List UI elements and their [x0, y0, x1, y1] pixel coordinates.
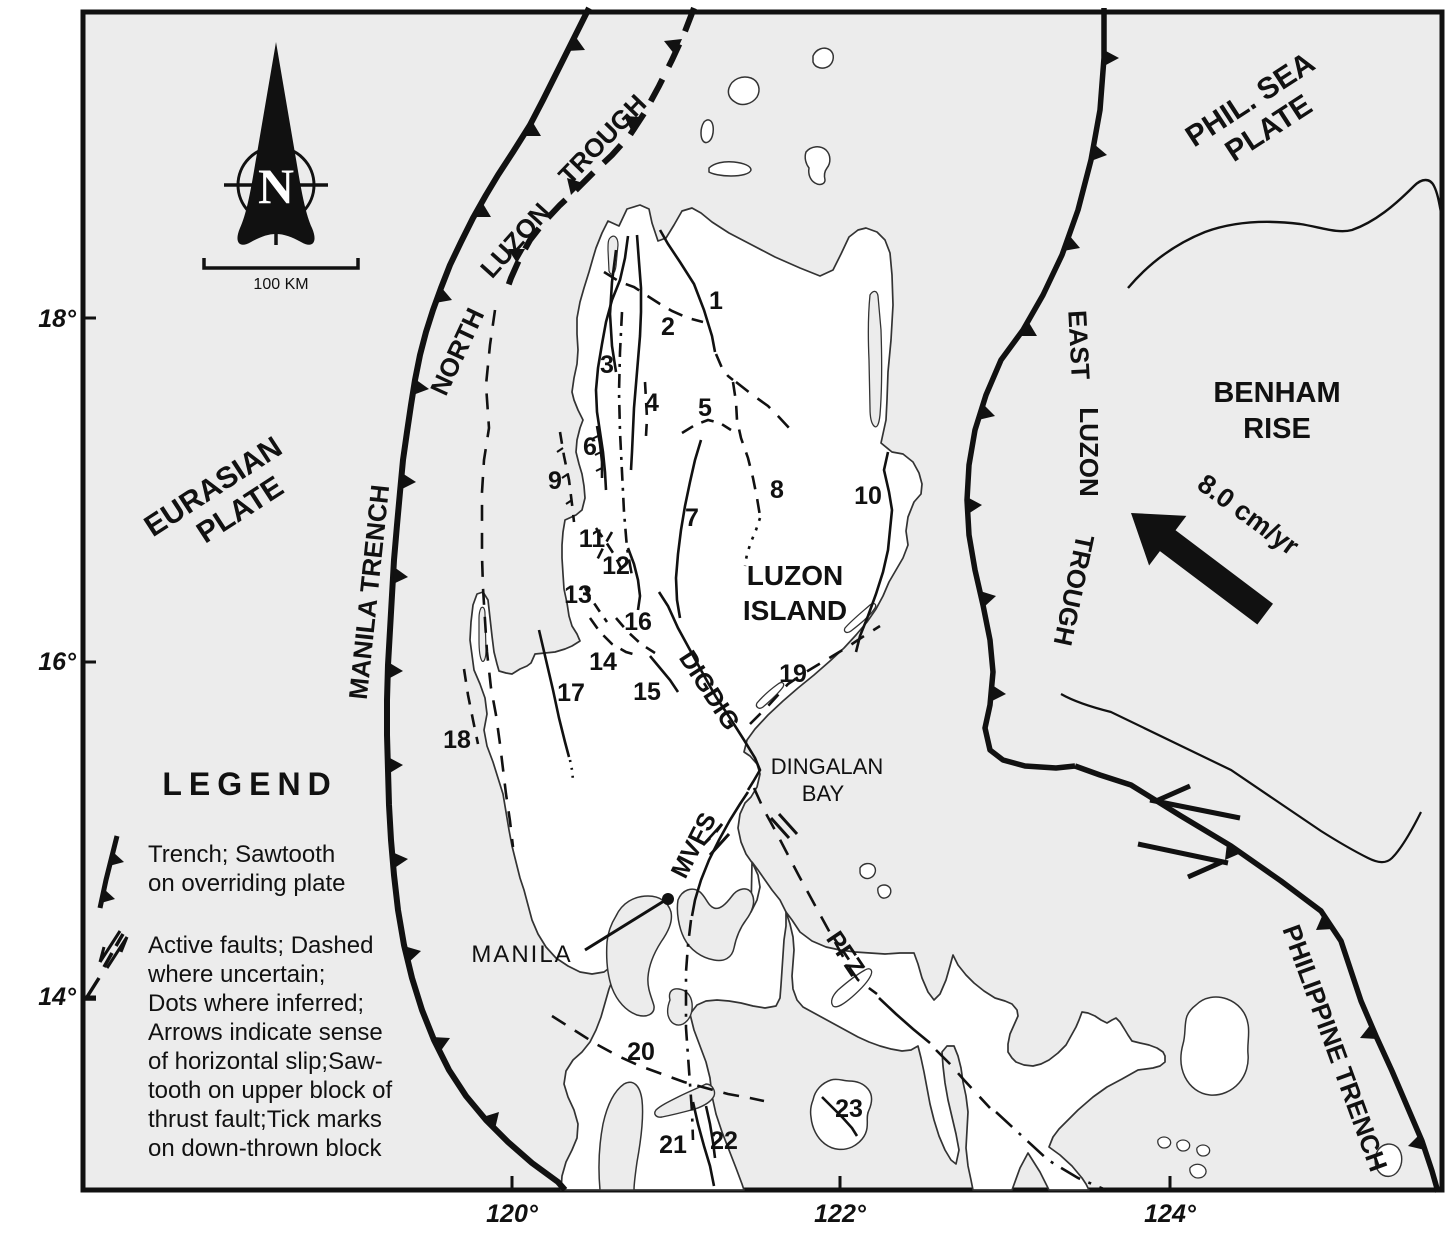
svg-text:4: 4: [645, 389, 659, 417]
svg-text:RISE: RISE: [1243, 413, 1311, 445]
svg-text:12: 12: [602, 552, 630, 580]
svg-text:2: 2: [661, 313, 675, 341]
svg-text:N: N: [258, 158, 294, 214]
svg-text:20: 20: [627, 1038, 655, 1066]
svg-text:of horizontal slip;Saw-: of horizontal slip;Saw-: [148, 1048, 383, 1075]
svg-text:22: 22: [710, 1127, 738, 1155]
svg-text:5: 5: [698, 394, 712, 422]
svg-text:LEGEND: LEGEND: [162, 766, 337, 802]
svg-text:21: 21: [659, 1131, 687, 1159]
svg-text:11: 11: [579, 525, 606, 553]
svg-text:122°: 122°: [814, 1200, 867, 1228]
svg-text:17: 17: [557, 679, 585, 707]
svg-text:EAST: EAST: [1062, 310, 1096, 381]
svg-text:Arrows indicate sense: Arrows indicate sense: [148, 1019, 383, 1046]
svg-text:18°: 18°: [38, 305, 77, 333]
svg-text:where uncertain;: where uncertain;: [147, 961, 325, 988]
svg-text:16: 16: [624, 608, 652, 636]
svg-text:thrust fault;Tick marks: thrust fault;Tick marks: [148, 1106, 382, 1133]
svg-text:on overriding plate: on overriding plate: [148, 870, 345, 897]
svg-text:tooth on upper block of: tooth on upper block of: [148, 1077, 393, 1104]
svg-text:DINGALAN: DINGALAN: [771, 754, 883, 779]
svg-text:7: 7: [685, 504, 699, 532]
svg-text:LUZON: LUZON: [1074, 407, 1104, 497]
svg-text:124°: 124°: [1144, 1200, 1197, 1228]
svg-text:3: 3: [600, 351, 614, 379]
svg-text:Active faults; Dashed: Active faults; Dashed: [148, 932, 373, 959]
svg-text:9: 9: [548, 467, 562, 495]
svg-text:ISLAND: ISLAND: [743, 595, 847, 626]
svg-text:Trench; Sawtooth: Trench; Sawtooth: [148, 841, 335, 868]
svg-text:16°: 16°: [38, 648, 77, 676]
svg-text:6: 6: [583, 433, 597, 461]
svg-text:MANILA: MANILA: [471, 941, 572, 968]
svg-text:BAY: BAY: [802, 781, 845, 806]
svg-text:Dots where inferred;: Dots where inferred;: [148, 990, 364, 1017]
svg-text:BENHAM: BENHAM: [1213, 377, 1340, 409]
svg-text:19: 19: [779, 660, 807, 688]
svg-text:14: 14: [589, 648, 617, 676]
svg-text:13: 13: [564, 581, 592, 609]
svg-text:14°: 14°: [38, 983, 77, 1011]
svg-text:10: 10: [854, 482, 882, 510]
svg-text:on down-thrown block: on down-thrown block: [148, 1135, 382, 1162]
svg-text:1: 1: [709, 287, 723, 315]
svg-text:8: 8: [770, 476, 784, 504]
svg-text:120°: 120°: [486, 1200, 539, 1228]
svg-text:100 KM: 100 KM: [253, 276, 308, 293]
svg-text:18: 18: [443, 726, 471, 754]
svg-text:23: 23: [835, 1095, 863, 1123]
svg-text:LUZON: LUZON: [747, 560, 843, 591]
svg-text:15: 15: [633, 678, 661, 706]
